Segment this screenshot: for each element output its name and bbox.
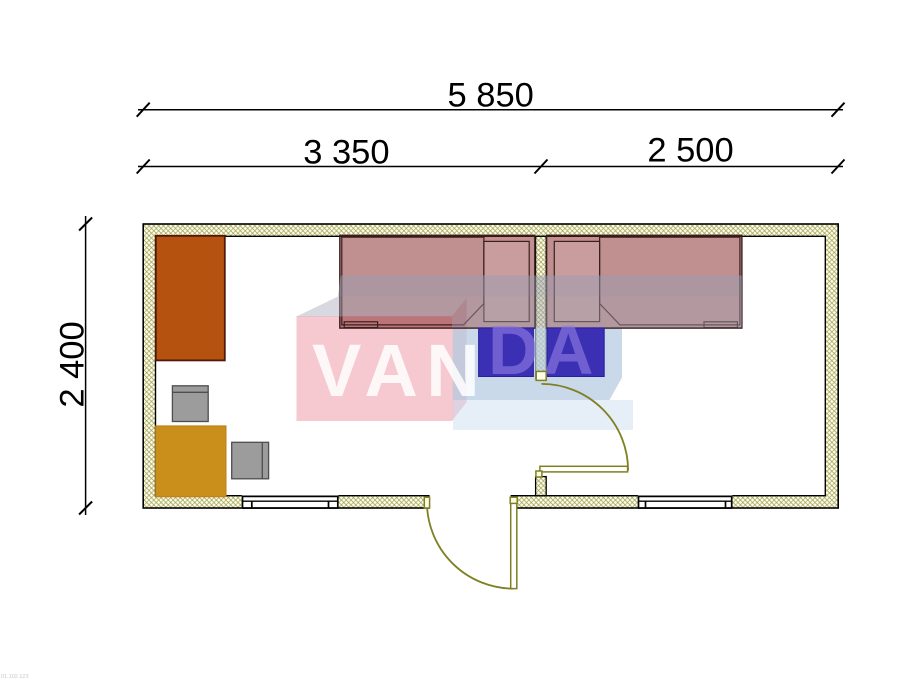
- svg-text:VAN: VAN: [312, 329, 488, 412]
- svg-text:3 350: 3 350: [303, 133, 389, 171]
- svg-text:2 500: 2 500: [647, 132, 733, 170]
- svg-text:2 400: 2 400: [54, 321, 92, 407]
- svg-text:01.102.123: 01.102.123: [1, 674, 29, 680]
- svg-text:5 850: 5 850: [448, 76, 534, 114]
